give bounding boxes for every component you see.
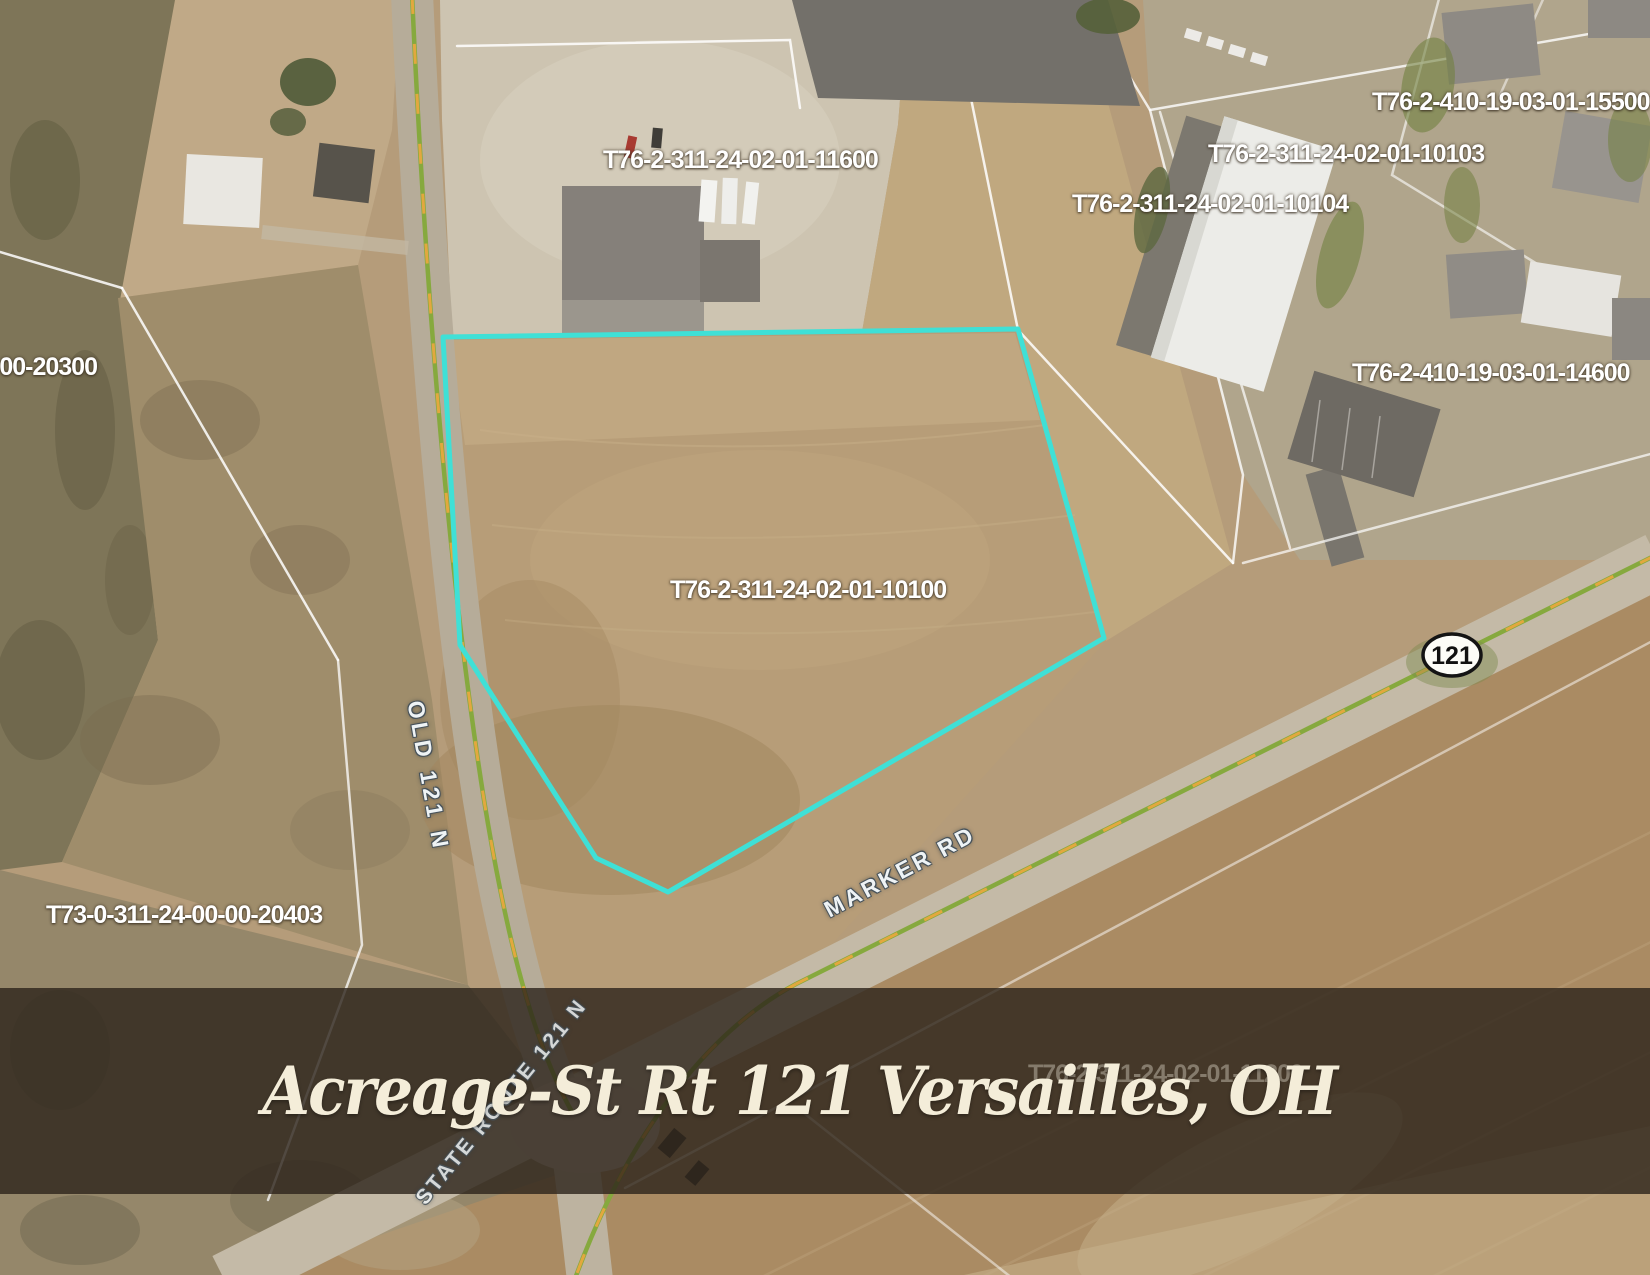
listing-photo: 121 T76-2-311-24-02-01-11600 T76-2-410-1… [0,0,1650,1275]
route-shield-number: 121 [1431,642,1473,670]
parcel-label: T76-2-311-24-02-01-11600 [603,146,878,175]
parcel-label: T76-2-311-24-02-01-10104 [1072,190,1348,219]
parcel-label: T76-2-410-19-03-01-15500 [1372,88,1650,117]
title-banner [0,988,1650,1194]
parcel-label-highlighted: T76-2-311-24-02-01-10100 [670,576,946,605]
parcel-label: T73-0-311-24-00-00-20403 [46,901,322,930]
parcel-label-faint: T76-2-311-24-02-01-11200 [1028,1060,1303,1089]
parcel-label: -00-20300 [0,353,97,382]
parcel-label: T76-2-311-24-02-01-10103 [1208,140,1484,169]
parcel-label: T76-2-410-19-03-01-14600 [1352,359,1630,388]
